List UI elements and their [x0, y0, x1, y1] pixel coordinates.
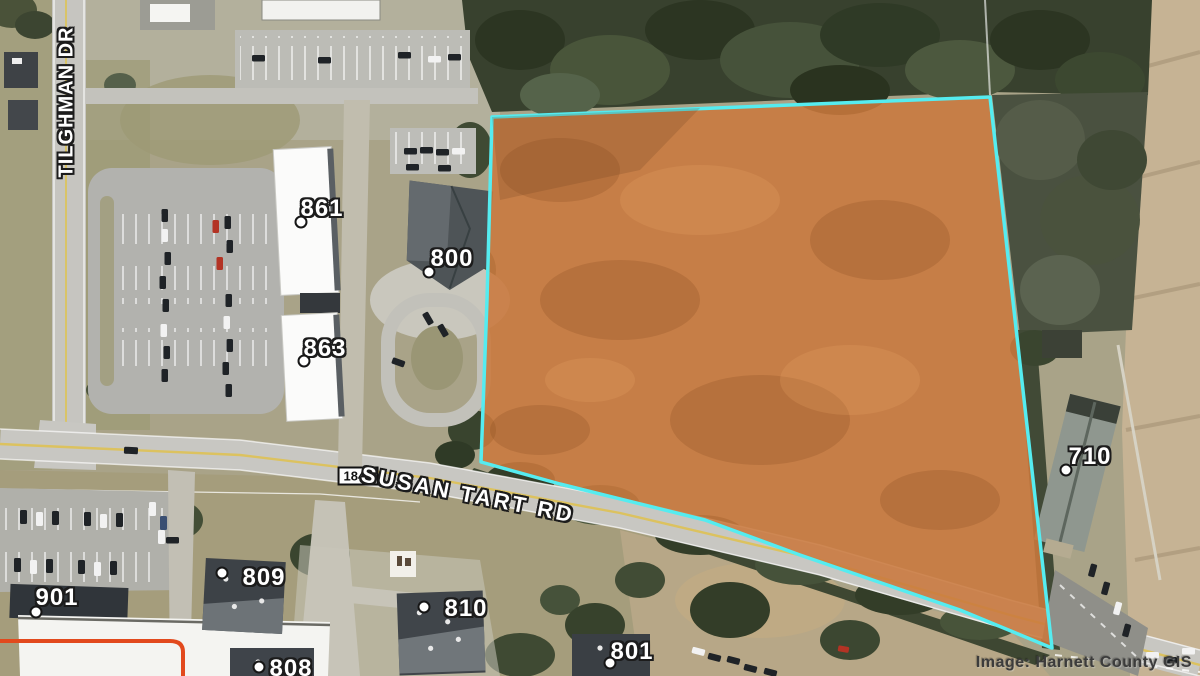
address-point-marker [604, 657, 617, 670]
address-label-809: 809 [242, 564, 285, 592]
address-label-801: 801 [610, 638, 653, 666]
address-label-808: 808 [269, 655, 312, 676]
address-point-marker [295, 216, 308, 229]
aerial-map: 861800863901809810808801710 TILGHMAN DR … [0, 0, 1200, 676]
address-label-901: 901 [35, 584, 78, 612]
address-point-marker [423, 266, 436, 279]
address-point-marker [1060, 464, 1073, 477]
satellite-imagery [0, 0, 1200, 676]
address-point-marker [253, 661, 266, 674]
address-point-marker [298, 355, 311, 368]
address-label-710: 710 [1068, 443, 1111, 471]
attribution-credit: Image: Harnett County GIS [976, 654, 1192, 672]
address-point-marker [216, 567, 229, 580]
address-point-marker [30, 606, 43, 619]
address-point-marker [418, 601, 431, 614]
road-label-tilghman-dr: TILGHMAN DR [56, 27, 79, 178]
address-label-810: 810 [444, 595, 487, 623]
address-label-800: 800 [430, 245, 473, 273]
